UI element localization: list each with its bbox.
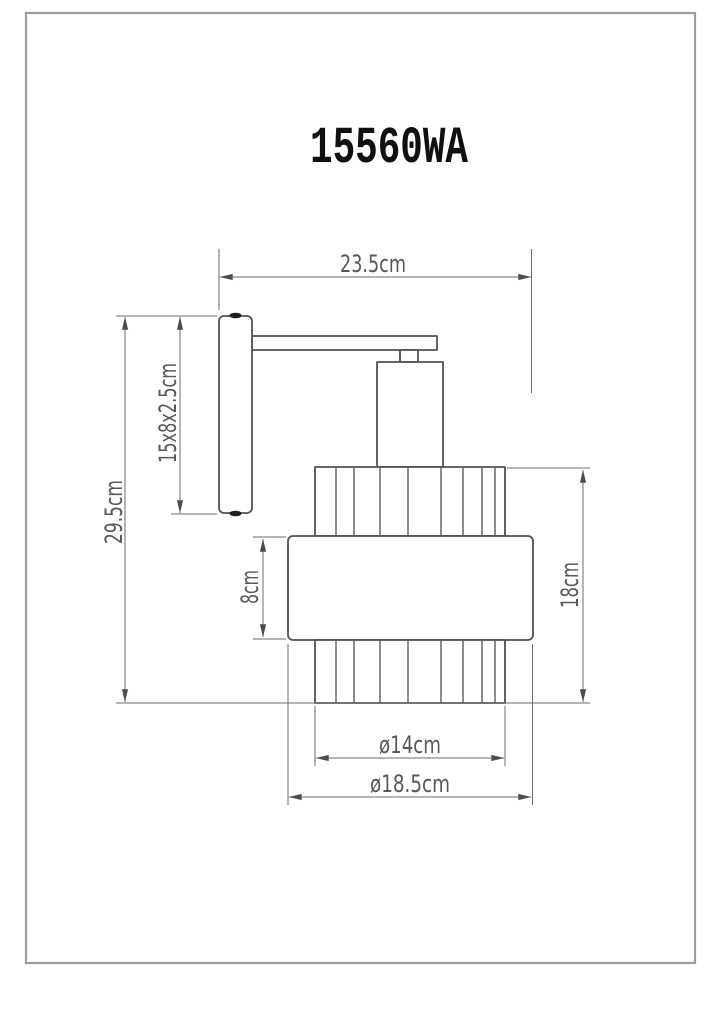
wall-backplate bbox=[219, 316, 252, 513]
lamp-arm bbox=[252, 336, 437, 350]
dim-label-shade-height: 18cm bbox=[556, 562, 584, 608]
dim-label-middle-band: 8cm bbox=[236, 570, 264, 604]
arm-connector bbox=[400, 350, 418, 362]
mounting-screw-bottom bbox=[230, 511, 242, 517]
drawing-page: 15560WA bbox=[0, 0, 723, 1024]
dim-label-backplate: 15x8x2.5cm bbox=[154, 363, 182, 463]
shade-bottom-ribs bbox=[315, 640, 505, 703]
dim-total-width: 23.5cm bbox=[219, 249, 532, 393]
shade-top-ribs bbox=[315, 467, 505, 536]
dim-middle-band: 8cm bbox=[236, 537, 286, 639]
dim-label-inner-diameter: ø14cm bbox=[379, 731, 441, 759]
dim-label-total-width: 23.5cm bbox=[340, 250, 406, 278]
lamp-stem bbox=[377, 362, 443, 467]
dim-backplate: 15x8x2.5cm bbox=[154, 317, 217, 514]
dim-inner-diameter: ø14cm bbox=[315, 706, 505, 766]
lamp-drawing bbox=[219, 313, 533, 703]
shade-middle-band bbox=[288, 536, 533, 640]
dim-label-total-height: 29.5cm bbox=[100, 480, 128, 544]
dim-label-outer-diameter: ø18.5cm bbox=[370, 770, 450, 798]
mounting-screw-top bbox=[230, 313, 242, 319]
shade-bottom-band bbox=[315, 640, 505, 703]
technical-drawing-canvas: 15560WA bbox=[0, 0, 723, 1024]
shade-top-band bbox=[315, 467, 505, 536]
page-title: 15560WA bbox=[310, 119, 469, 178]
